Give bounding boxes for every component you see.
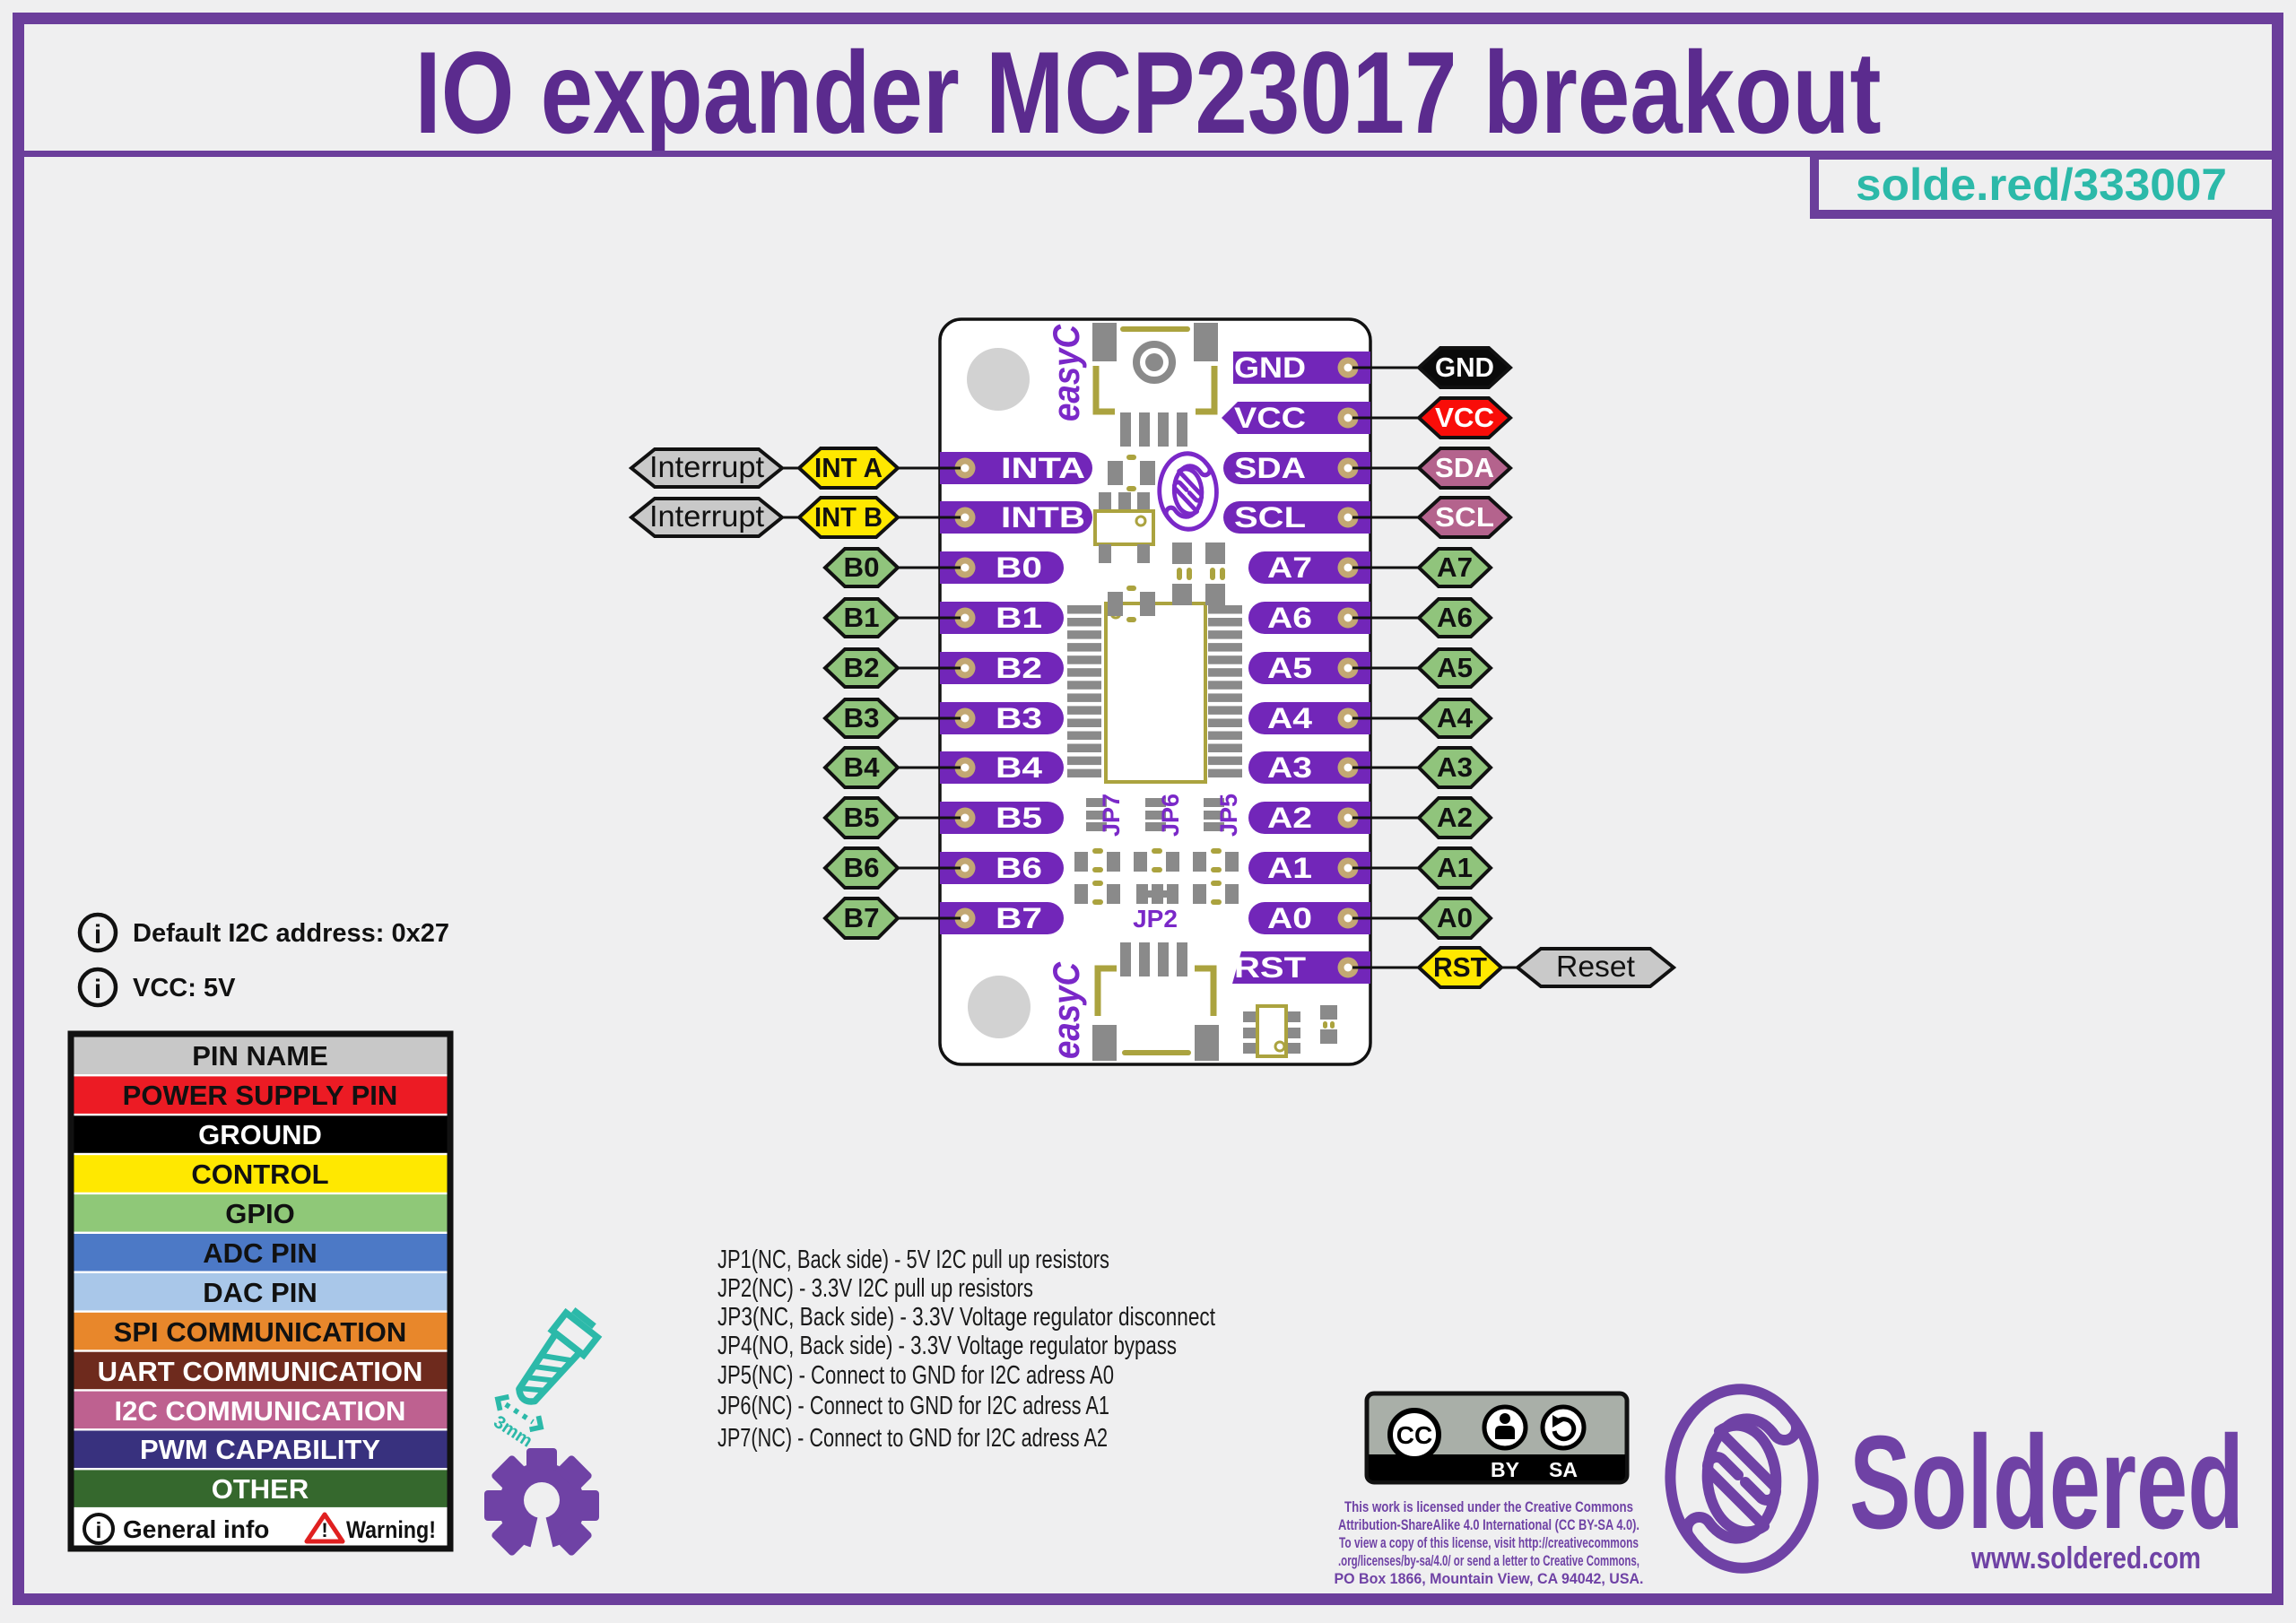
svg-text:I2C COMMUNICATION: I2C COMMUNICATION [115, 1395, 406, 1427]
svg-text:B5: B5 [844, 802, 880, 833]
svg-text:Reset: Reset [1556, 950, 1635, 983]
svg-text:SPI COMMUNICATION: SPI COMMUNICATION [114, 1316, 407, 1348]
svg-text:INTB: INTB [1001, 501, 1085, 534]
svg-text:This work is licensed under th: This work is licensed under the Creative… [1344, 1499, 1633, 1515]
svg-text:B3: B3 [844, 702, 880, 733]
svg-text:INT B: INT B [814, 501, 883, 533]
svg-text:A7: A7 [1267, 551, 1312, 584]
svg-text:!: ! [321, 1519, 327, 1541]
svg-text:JP7(NC) - Connect to GND for I: JP7(NC) - Connect to GND for I2C adress … [717, 1424, 1108, 1453]
svg-text:B2: B2 [844, 652, 880, 683]
svg-text:B1: B1 [996, 602, 1042, 634]
svg-text:A3: A3 [1267, 751, 1312, 784]
svg-text:B6: B6 [844, 852, 880, 883]
svg-text:To view a copy of this license: To view a copy of this license, visit ht… [1339, 1535, 1639, 1551]
svg-text:B4: B4 [844, 751, 881, 783]
svg-text:PWM CAPABILITY: PWM CAPABILITY [140, 1434, 380, 1465]
svg-text:Attribution-ShareAlike 4.0 Int: Attribution-ShareAlike 4.0 International… [1338, 1517, 1639, 1533]
svg-text:B7: B7 [996, 902, 1042, 934]
svg-text:B0: B0 [844, 551, 880, 583]
svg-text:JP2(NC) - 3.3V I2C pull up res: JP2(NC) - 3.3V I2C pull up resistors [717, 1274, 1033, 1303]
svg-text:JP6(NC) - Connect to GND for I: JP6(NC) - Connect to GND for I2C adress … [717, 1392, 1109, 1420]
svg-text:RST: RST [1234, 951, 1307, 984]
svg-text:JP7: JP7 [1098, 794, 1125, 837]
svg-text:www.soldered.com: www.soldered.com [1970, 1541, 2201, 1575]
svg-text:GND: GND [1435, 352, 1494, 383]
svg-text:A0: A0 [1267, 902, 1312, 934]
svg-text:PO Box 1866, Mountain View, CA: PO Box 1866, Mountain View, CA 94042, US… [1335, 1571, 1644, 1587]
svg-text:SCL: SCL [1234, 501, 1306, 534]
svg-text:RST: RST [1433, 951, 1487, 983]
svg-text:IO expander MCP23017 breakout: IO expander MCP23017 breakout [415, 27, 1882, 158]
svg-text:SCL: SCL [1435, 501, 1494, 533]
svg-text:SDA: SDA [1234, 452, 1306, 484]
svg-text:.org/licenses/by-sa/4.0/ or se: .org/licenses/by-sa/4.0/ or send a lette… [1338, 1553, 1639, 1569]
svg-text:INT A: INT A [814, 452, 883, 483]
svg-text:JP5: JP5 [1215, 794, 1242, 837]
svg-text:i: i [94, 975, 101, 1004]
svg-text:JP1(NC, Back side) - 5V I2C pu: JP1(NC, Back side) - 5V I2C pull up resi… [717, 1245, 1109, 1274]
svg-text:B5: B5 [996, 802, 1042, 834]
svg-text:VCC: VCC [1234, 402, 1306, 434]
svg-text:easyC: easyC [1045, 324, 1087, 421]
svg-text:A6: A6 [1267, 602, 1312, 634]
svg-text:B3: B3 [996, 702, 1042, 734]
svg-text:GPIO: GPIO [225, 1198, 295, 1229]
svg-text:VCC: 5V: VCC: 5V [133, 974, 236, 1002]
svg-text:A0: A0 [1437, 902, 1473, 933]
svg-text:A1: A1 [1267, 852, 1312, 884]
svg-text:CONTROL: CONTROL [191, 1159, 328, 1190]
svg-text:A2: A2 [1267, 802, 1312, 834]
svg-text:JP5(NC) - Connect to GND for I: JP5(NC) - Connect to GND for I2C adress … [717, 1361, 1114, 1390]
svg-text:B0: B0 [996, 551, 1042, 584]
svg-text:Interrupt: Interrupt [649, 499, 764, 533]
svg-text:B1: B1 [844, 602, 880, 633]
svg-text:A3: A3 [1437, 751, 1473, 783]
svg-text:Interrupt: Interrupt [649, 450, 764, 483]
svg-text:GND: GND [1234, 352, 1306, 384]
svg-text:JP4(NO, Back side) - 3.3V Volt: JP4(NO, Back side) - 3.3V Voltage regula… [717, 1332, 1177, 1360]
svg-text:A1: A1 [1437, 852, 1473, 883]
svg-text:JP3(NC, Back side) - 3.3V Volt: JP3(NC, Back side) - 3.3V Voltage regula… [717, 1303, 1215, 1332]
svg-text:Warning!: Warning! [346, 1516, 436, 1543]
svg-text:A5: A5 [1437, 652, 1473, 683]
svg-text:Soldered: Soldered [1849, 1409, 2244, 1557]
svg-text:JP2: JP2 [1133, 905, 1178, 933]
svg-text:easyC: easyC [1045, 961, 1087, 1059]
svg-text:i: i [96, 1518, 102, 1543]
svg-text:A4: A4 [1267, 702, 1312, 734]
svg-text:BY: BY [1491, 1458, 1519, 1481]
svg-text:SA: SA [1549, 1458, 1578, 1481]
svg-text:VCC: VCC [1435, 402, 1494, 433]
svg-text:A4: A4 [1437, 702, 1474, 733]
svg-text:A5: A5 [1267, 652, 1312, 684]
svg-text:A6: A6 [1437, 602, 1473, 633]
svg-text:solde.red/333007: solde.red/333007 [1856, 160, 2227, 210]
svg-text:CC: CC [1396, 1421, 1432, 1449]
svg-text:B2: B2 [996, 652, 1042, 684]
svg-text:Default I2C address: 0x27: Default I2C address: 0x27 [133, 919, 449, 948]
svg-text:i: i [94, 920, 101, 950]
svg-text:ADC PIN: ADC PIN [203, 1237, 317, 1269]
svg-text:POWER SUPPLY PIN: POWER SUPPLY PIN [123, 1080, 398, 1111]
svg-text:B7: B7 [844, 902, 880, 933]
svg-text:GROUND: GROUND [198, 1119, 322, 1150]
svg-text:PIN NAME: PIN NAME [192, 1040, 328, 1072]
svg-text:DAC PIN: DAC PIN [203, 1277, 317, 1308]
svg-text:INTA: INTA [1001, 452, 1085, 484]
svg-text:B4: B4 [996, 751, 1042, 784]
svg-text:JP6: JP6 [1157, 794, 1184, 837]
svg-text:A2: A2 [1437, 802, 1473, 833]
svg-text:General info: General info [123, 1515, 269, 1543]
svg-text:UART COMMUNICATION: UART COMMUNICATION [98, 1356, 423, 1387]
svg-text:B6: B6 [996, 852, 1042, 884]
svg-text:OTHER: OTHER [212, 1473, 309, 1505]
svg-text:SDA: SDA [1435, 452, 1494, 483]
svg-text:A7: A7 [1437, 551, 1473, 583]
